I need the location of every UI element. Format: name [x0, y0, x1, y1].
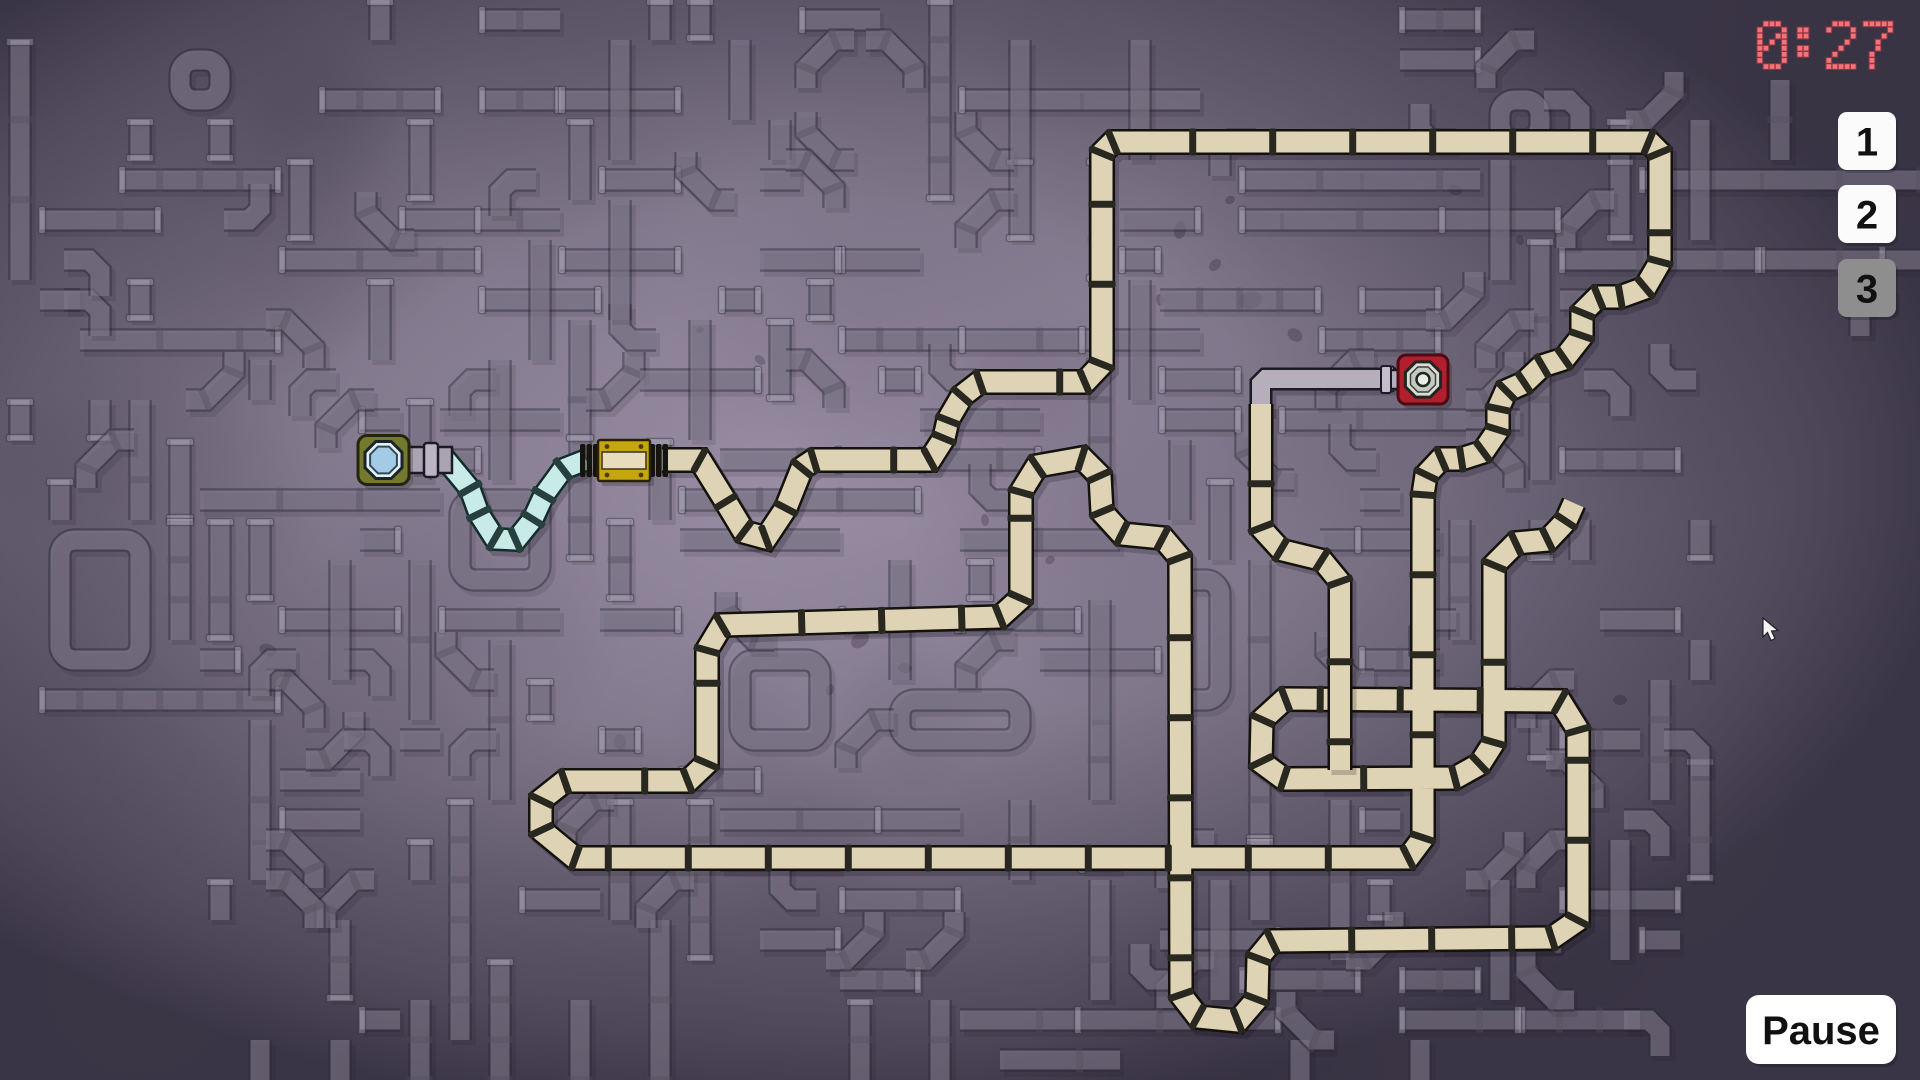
- svg-text:1: 1: [1856, 120, 1878, 164]
- svg-text:3: 3: [1856, 267, 1878, 311]
- svg-text:Pause: Pause: [1762, 1009, 1880, 1053]
- svg-text:2: 2: [1856, 193, 1878, 237]
